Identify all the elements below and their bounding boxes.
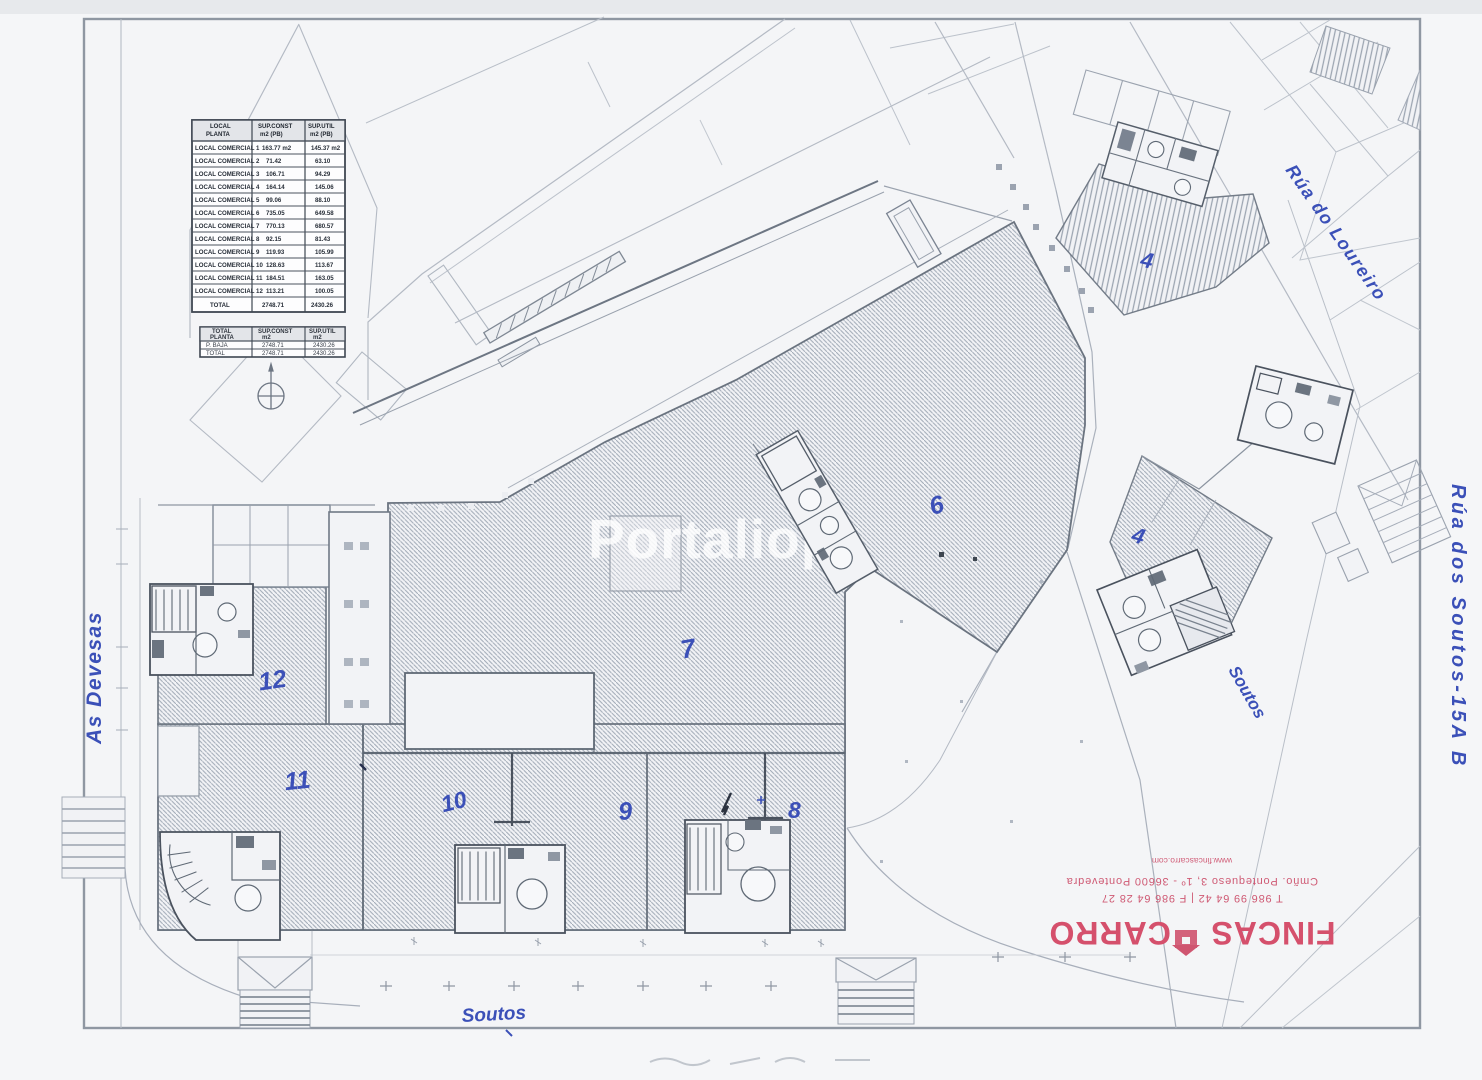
svg-text:PLANTA: PLANTA [206,132,231,138]
svg-text:128.63: 128.63 [266,262,285,269]
svg-text:2430.26: 2430.26 [313,351,335,357]
svg-text:81.43: 81.43 [315,236,331,243]
svg-text:164.14: 164.14 [266,184,285,191]
svg-text:LOCAL COMERCIAL 11: LOCAL COMERCIAL 11 [195,275,263,282]
svg-text:LOCAL COMERCIAL 4: LOCAL COMERCIAL 4 [195,184,260,191]
svg-text:94.29: 94.29 [315,171,331,178]
svg-text:113.67: 113.67 [315,262,334,269]
svg-text:LOCAL COMERCIAL 6: LOCAL COMERCIAL 6 [195,210,260,217]
svg-text:Rúa dos Soutos-15A B: Rúa dos Soutos-15A B [1447,484,1469,769]
svg-text:LOCAL COMERCIAL 2: LOCAL COMERCIAL 2 [195,158,260,165]
svg-text:LOCAL: LOCAL [210,124,231,130]
svg-text:PLANTA: PLANTA [210,335,235,341]
svg-text:LOCAL COMERCIAL 1: LOCAL COMERCIAL 1 [195,145,260,152]
svg-text:2748.71: 2748.71 [262,302,285,309]
svg-text:8: 8 [788,797,801,823]
svg-text:11: 11 [283,766,312,797]
svg-text:113.21: 113.21 [266,288,285,295]
svg-text:LOCAL COMERCIAL 8: LOCAL COMERCIAL 8 [195,236,260,243]
svg-text:Soutos: Soutos [461,1003,526,1027]
svg-text:184.51: 184.51 [266,275,285,282]
svg-text:LOCAL COMERCIAL 12: LOCAL COMERCIAL 12 [195,288,263,295]
svg-text:63.10: 63.10 [315,158,331,165]
svg-text:SUP.CONST: SUP.CONST [258,124,293,130]
svg-text:m2 (PB): m2 (PB) [260,132,283,138]
svg-text:m2: m2 [313,335,322,341]
svg-text:92.15: 92.15 [266,236,282,243]
svg-text:145.06: 145.06 [315,184,334,191]
svg-text:LOCAL COMERCIAL 10: LOCAL COMERCIAL 10 [195,262,263,269]
svg-text:SUP.UTIL: SUP.UTIL [308,124,335,130]
svg-text:TOTAL: TOTAL [206,351,225,357]
svg-text:LOCAL COMERCIAL 7: LOCAL COMERCIAL 7 [195,223,260,230]
svg-text:99.06: 99.06 [266,197,282,204]
svg-text:2748.71: 2748.71 [262,351,284,357]
svg-text:88.10: 88.10 [315,197,331,204]
svg-text:m2: m2 [262,335,271,341]
svg-text:LOCAL COMERCIAL 5: LOCAL COMERCIAL 5 [195,197,260,204]
svg-text:TOTAL: TOTAL [210,302,230,309]
svg-text:www.fincascarro.com: www.fincascarro.com [1152,856,1233,866]
svg-text:163.05: 163.05 [315,275,334,282]
svg-text:680.57: 680.57 [315,223,334,230]
svg-text:LOCAL COMERCIAL 3: LOCAL COMERCIAL 3 [195,171,260,178]
svg-text:m2 (PB): m2 (PB) [310,132,333,138]
svg-text:12: 12 [257,665,289,697]
svg-text:770.13: 770.13 [266,223,285,230]
svg-text:2430.26: 2430.26 [311,302,334,309]
svg-text:71.42: 71.42 [266,158,282,165]
svg-text:LOCAL COMERCIAL 9: LOCAL COMERCIAL 9 [195,249,260,256]
svg-text:145.37 m2: 145.37 m2 [311,145,341,152]
svg-text:100.05: 100.05 [315,288,334,295]
svg-text:2430.26: 2430.26 [313,343,335,349]
svg-text:163.77 m2: 163.77 m2 [262,145,292,152]
svg-text:P. BAJA: P. BAJA [206,343,228,349]
svg-text:T 986 99 64 42 | F 986 64 28 2: T 986 99 64 42 | F 986 64 28 27 [1101,892,1283,904]
svg-text:119.93: 119.93 [266,249,285,256]
svg-text:649.58: 649.58 [315,210,334,217]
svg-text:106.71: 106.71 [266,171,285,178]
svg-text:Cmño. Pontequeso 3, 1º - 36600: Cmño. Pontequeso 3, 1º - 36600 Pontevedr… [1066,875,1318,887]
svg-text:105.99: 105.99 [315,249,334,256]
svg-text:2748.71: 2748.71 [262,343,284,349]
svg-text:735.05: 735.05 [266,210,285,217]
svg-text:As Devesas: As Devesas [83,611,106,745]
